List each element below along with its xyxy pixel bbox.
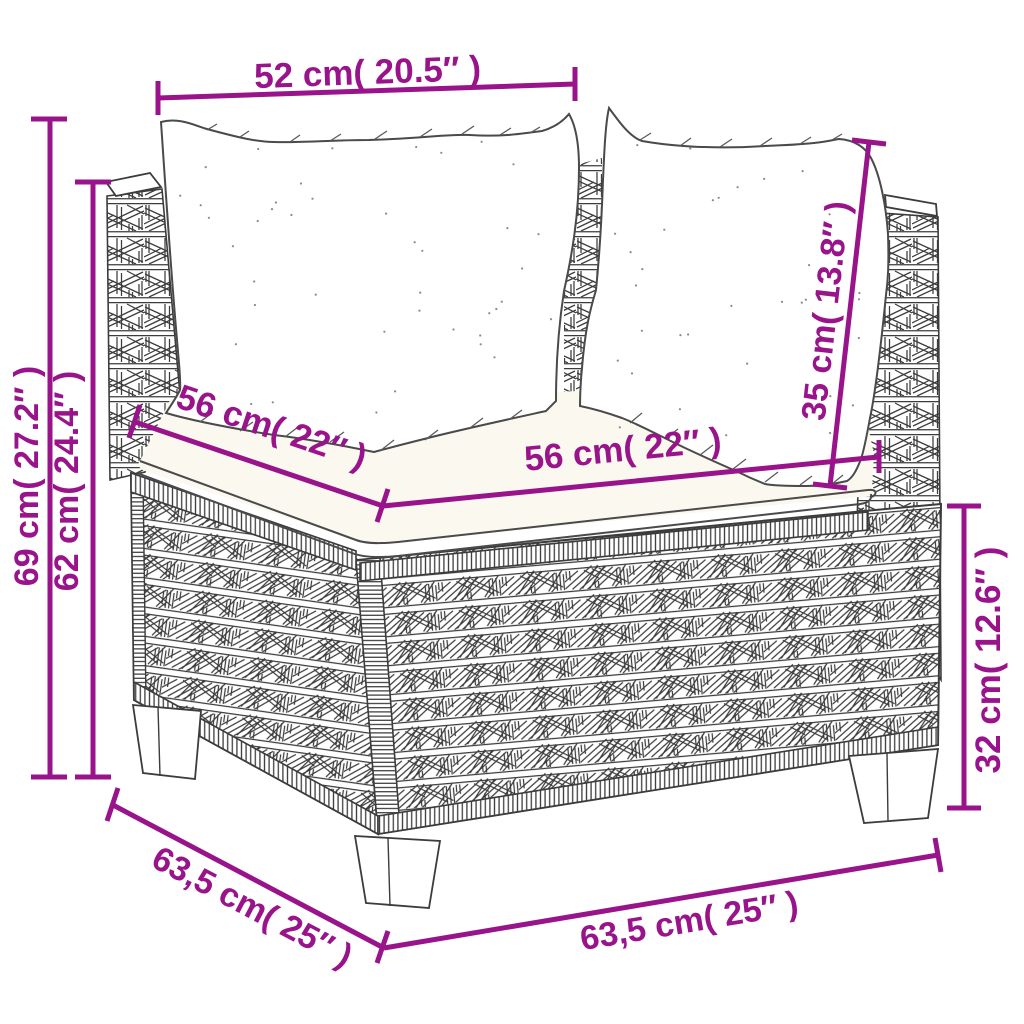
svg-text:52 cm( 20.5″ ): 52 cm( 20.5″ ) — [253, 49, 481, 96]
svg-text:32 cm( 12.6″ ): 32 cm( 12.6″ ) — [969, 547, 1008, 774]
svg-text:69 cm( 27.2″ ): 69 cm( 27.2″ ) — [8, 366, 46, 586]
svg-text:62 cm( 24.4″ ): 62 cm( 24.4″ ) — [48, 371, 86, 591]
